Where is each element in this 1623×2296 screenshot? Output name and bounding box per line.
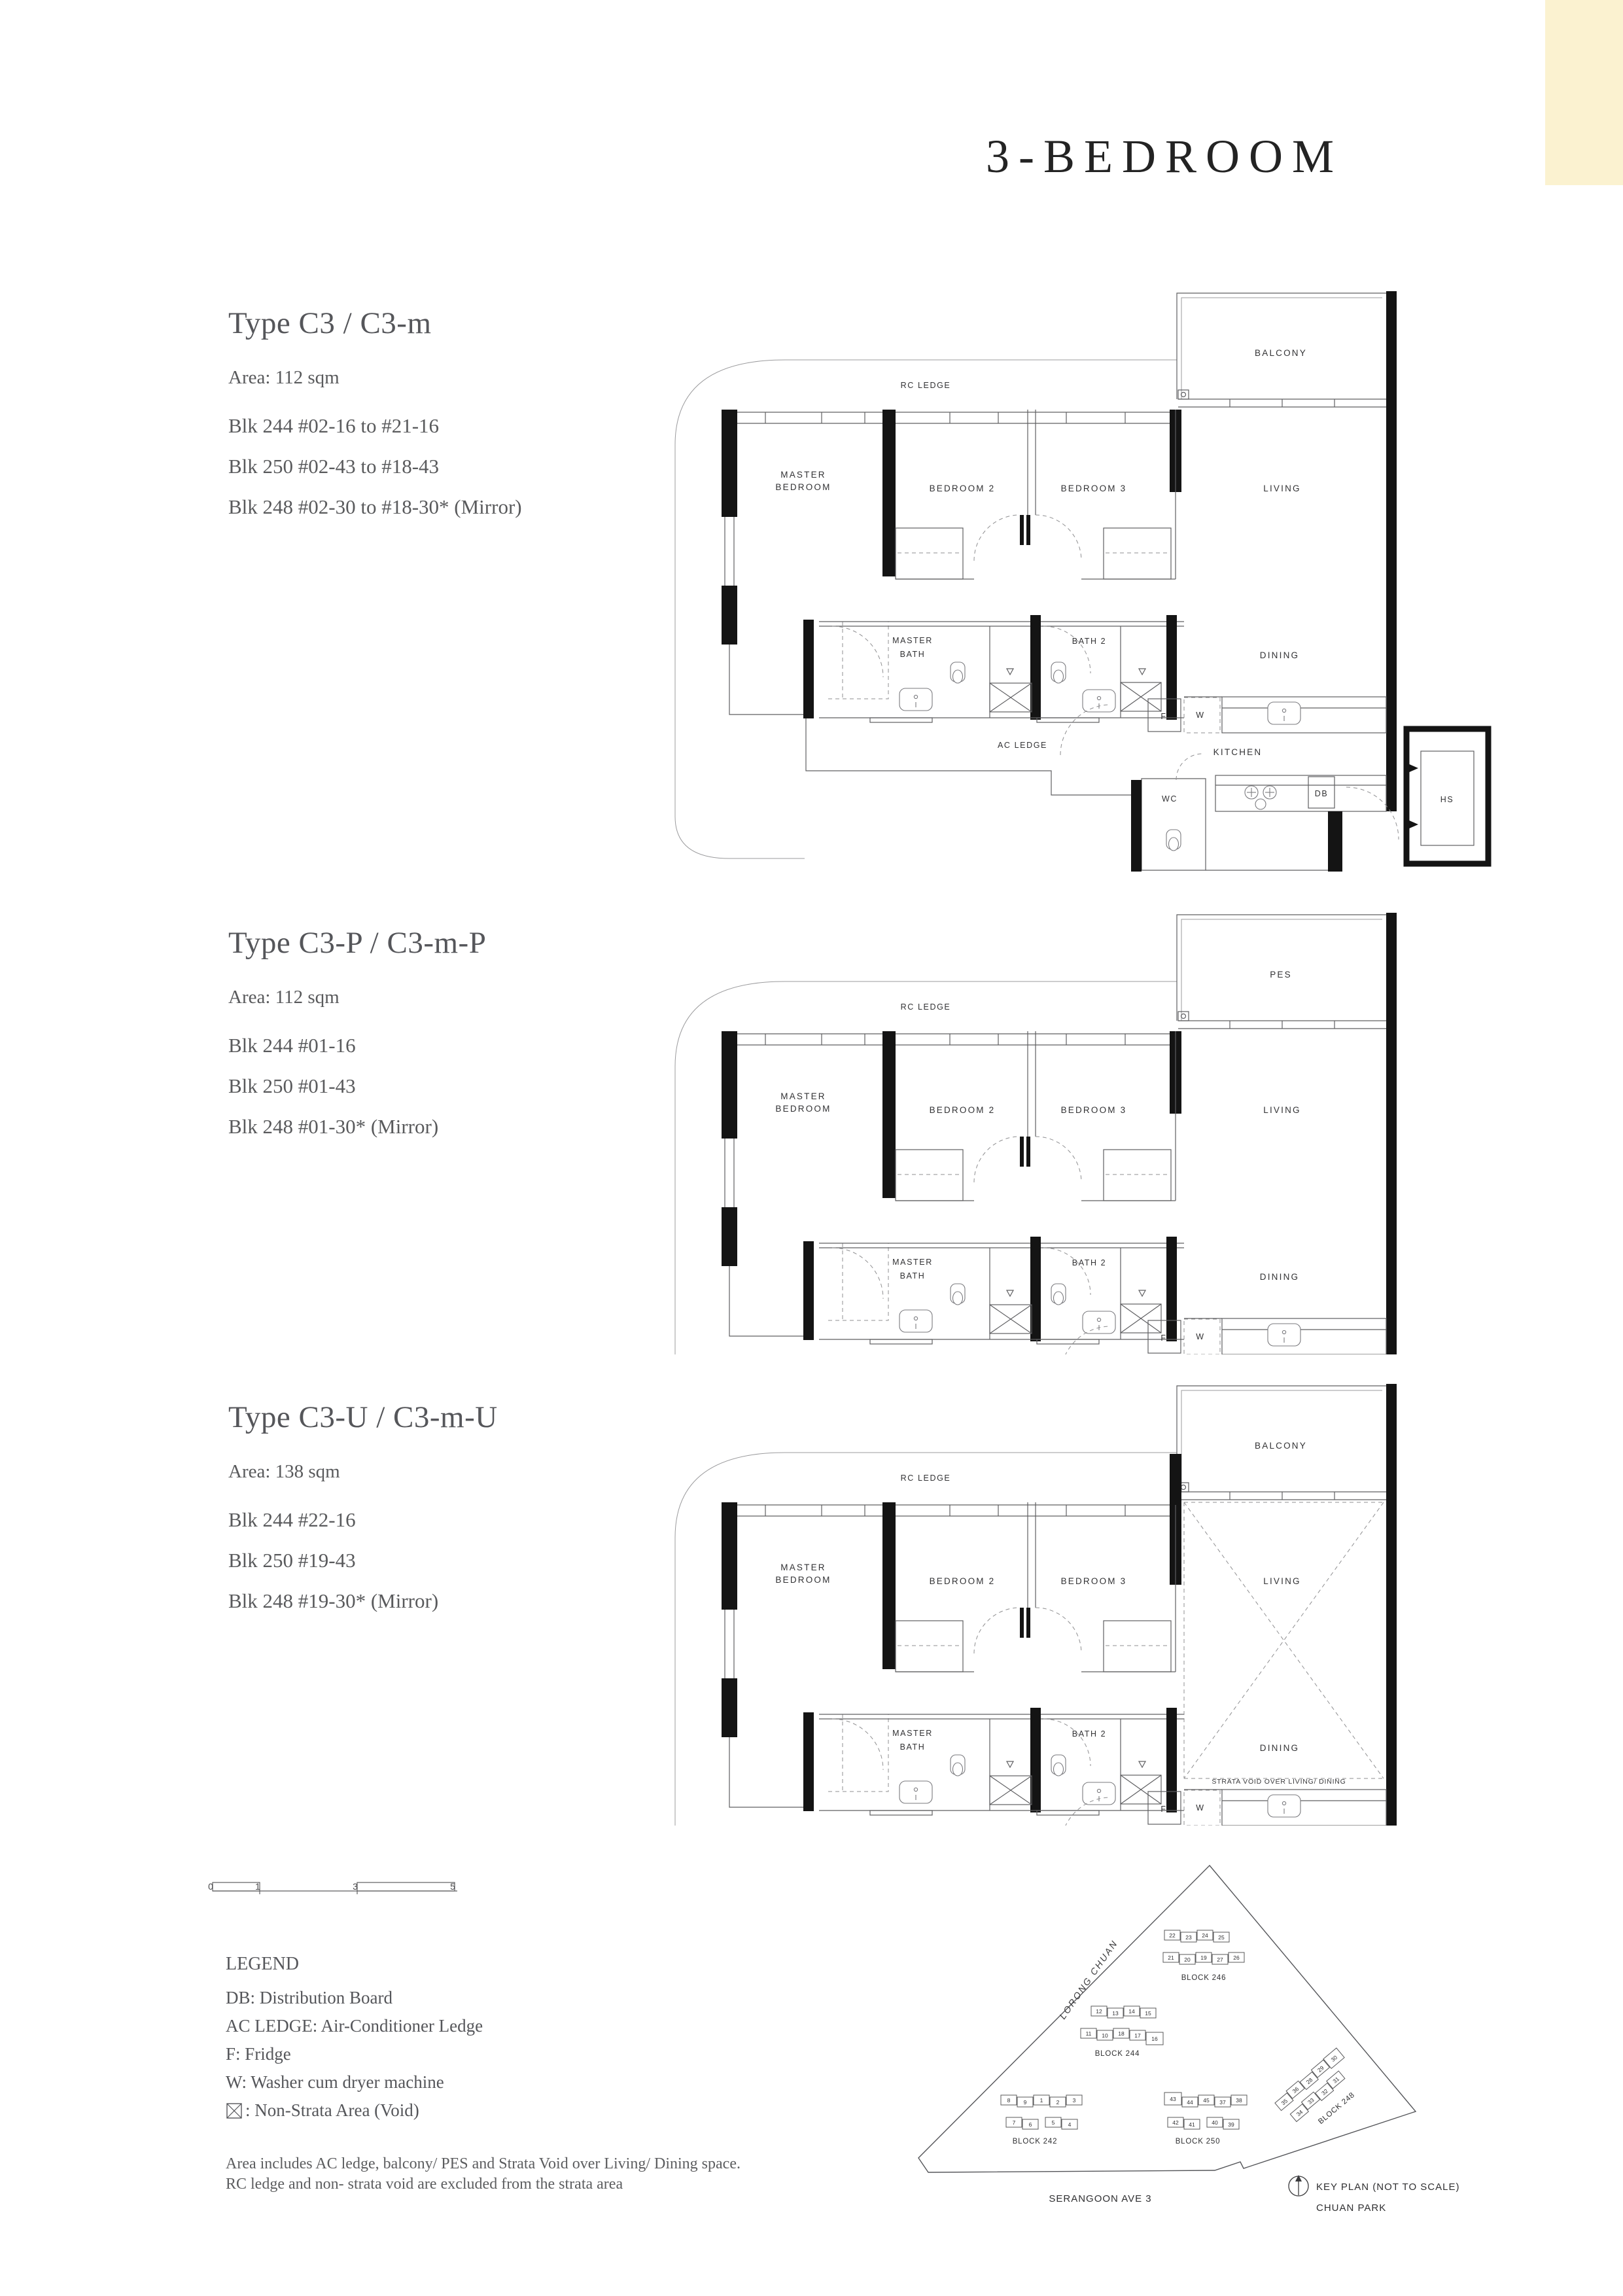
unit-number: 37 <box>1219 2099 1226 2106</box>
unit-number: 23 <box>1185 1934 1192 1941</box>
ac-ledge-label: AC LEDGE <box>998 741 1047 750</box>
keyplan-block-244: 12 13 14 15 11 10 18 17 16 BLOCK 244 <box>1081 2006 1163 2058</box>
footnote: Area includes AC ledge, balcony/ PES and… <box>226 2154 741 2195</box>
brochure-page: 3-BEDROOM Type C3 / C3-m Area: 112 sqm B… <box>0 0 1623 2296</box>
unit-number: 2 <box>1056 2099 1060 2106</box>
unit-number: 19 <box>1200 1954 1207 1961</box>
unit-number: 18 <box>1118 2030 1125 2037</box>
unit-number: 11 <box>1086 2030 1092 2037</box>
type-name: Type C3-U / C3-m-U <box>228 1400 498 1434</box>
unit-number: 4 <box>1068 2121 1072 2128</box>
unit-number: 44 <box>1187 2099 1193 2106</box>
keyplan-block-246: 22 23 24 25 21 20 19 27 26 BLOCK 246 <box>1163 1930 1244 1982</box>
type-area: Area: 112 sqm <box>228 987 486 1008</box>
unit-number: 13 <box>1112 2010 1119 2017</box>
site-boundary <box>918 1865 1416 2172</box>
unit-number: 9 <box>1024 2099 1027 2106</box>
unit-number: 24 <box>1202 1932 1208 1939</box>
plan3-overlay: BALCONY STRATA VOID OVER LIVING/ DINING <box>1170 1441 1384 1786</box>
type-unit-range: Blk 250 #19-43 <box>228 1540 498 1581</box>
north-arrow-icon <box>1289 2175 1308 2196</box>
unit-number: 39 <box>1228 2121 1234 2128</box>
scale-tick: 5 <box>450 1881 455 1892</box>
type-unit-range: Blk 248 #19-30* (Mirror) <box>228 1581 498 1621</box>
key-plan: LORONG CHUAN SERANGOON AVE 3 22 23 24 25… <box>903 1845 1622 2264</box>
scale-tick: 3 <box>353 1881 358 1892</box>
floor-plan-type-c3p: PES <box>667 903 1524 1354</box>
floor-plan-type-c3u: BALCONY STRATA VOID OVER LIVING/ DINING <box>667 1374 1524 1826</box>
strata-void-cross <box>1184 1502 1384 1778</box>
type-block-c3u: Type C3-U / C3-m-U Area: 138 sqm Blk 244… <box>228 1400 498 1621</box>
type-name: Type C3-P / C3-m-P <box>228 926 486 960</box>
type-unit-range: Blk 244 #22-16 <box>228 1500 498 1540</box>
void-icon <box>226 2102 243 2119</box>
plan2-overlay: PES <box>1270 970 1292 980</box>
db-label: DB <box>1315 789 1329 798</box>
unit-number: 14 <box>1128 2008 1135 2015</box>
cream-corner-band <box>1545 0 1623 185</box>
unit-number: 6 <box>1029 2121 1032 2128</box>
balcony-label: BALCONY <box>1255 1441 1307 1451</box>
type-area: Area: 112 sqm <box>228 367 522 389</box>
keyplan-caption: CHUAN PARK <box>1316 2202 1386 2214</box>
unit-number: 10 <box>1102 2032 1108 2039</box>
type-area: Area: 138 sqm <box>228 1461 498 1483</box>
unit-number: 5 <box>1052 2119 1055 2126</box>
footnote-line: RC ledge and non- strata void are exclud… <box>226 2174 741 2195</box>
legend-item: : Non-Strata Area (Void) <box>245 2096 419 2125</box>
legend-item: DB: Distribution Board <box>226 1984 483 2012</box>
hob-icon <box>1245 786 1276 809</box>
type-unit-range: Blk 248 #02-30 to #18-30* (Mirror) <box>228 487 522 527</box>
household-shelter: HS <box>1406 729 1488 864</box>
type-name: Type C3 / C3-m <box>228 306 522 340</box>
type-unit-range: Blk 248 #01-30* (Mirror) <box>228 1106 486 1147</box>
unit-number: 20 <box>1184 1956 1191 1963</box>
wc-label: WC <box>1162 794 1178 804</box>
balcony-label: BALCONY <box>1255 348 1307 358</box>
road-serangoon-ave3: SERANGOON AVE 3 <box>1049 2193 1151 2204</box>
keyplan-block-242: 8 9 1 2 3 7 6 5 4 BLOCK 242 <box>1001 2095 1082 2146</box>
strata-void-label: STRATA VOID OVER LIVING/ DINING <box>1212 1778 1346 1786</box>
unit-number-highlight: 43 <box>1170 2096 1176 2102</box>
scale-bar: 0 1 3 5 <box>196 1871 484 1898</box>
unit-number: 40 <box>1212 2119 1218 2126</box>
unit-number: 38 <box>1236 2097 1242 2104</box>
type-unit-range: Blk 250 #01-43 <box>228 1066 486 1106</box>
type-unit-range: Blk 244 #01-16 <box>228 1025 486 1066</box>
unit-number: 21 <box>1168 1954 1174 1961</box>
legend-title: LEGEND <box>226 1954 483 1975</box>
floor-plan-type-c3: BALCONY AC LEDGE KITCHEN DB WC <box>667 281 1524 910</box>
pes-label: PES <box>1270 970 1292 980</box>
unit-number: 17 <box>1134 2032 1141 2039</box>
unit-number: 41 <box>1189 2121 1195 2128</box>
type-block-c3p: Type C3-P / C3-m-P Area: 112 sqm Blk 244… <box>228 926 486 1147</box>
unit-number: 7 <box>1013 2119 1016 2126</box>
unit-number: 1 <box>1040 2097 1043 2104</box>
block-label: BLOCK 242 <box>1013 2138 1058 2146</box>
legend-item: F: Fridge <box>226 2040 483 2068</box>
unit-number: 25 <box>1218 1934 1225 1941</box>
scale-tick: 0 <box>208 1881 213 1892</box>
unit-number: 45 <box>1203 2097 1210 2104</box>
unit-number-highlight: 16 <box>1151 2036 1158 2042</box>
type-unit-range: Blk 244 #02-16 to #21-16 <box>228 406 522 446</box>
block-label: BLOCK 246 <box>1181 1974 1227 1982</box>
legend: LEGEND DB: Distribution Board AC LEDGE: … <box>226 1954 483 2125</box>
keyplan-block-250: 43 44 45 37 38 42 41 40 39 BLOCK 250 <box>1164 2093 1247 2146</box>
unit-number: 8 <box>1007 2097 1011 2104</box>
legend-item: W: Washer cum dryer machine <box>226 2068 483 2096</box>
unit-number: 3 <box>1073 2097 1076 2104</box>
unit-number: 12 <box>1096 2008 1102 2015</box>
legend-item: AC LEDGE: Air-Conditioner Ledge <box>226 2012 483 2040</box>
keyplan-caption: KEY PLAN (NOT TO SCALE) <box>1316 2181 1459 2193</box>
type-block-c3: Type C3 / C3-m Area: 112 sqm Blk 244 #02… <box>228 306 522 527</box>
kitchen-label: KITCHEN <box>1213 747 1263 757</box>
block-label: BLOCK 250 <box>1176 2138 1221 2146</box>
scale-tick: 1 <box>255 1881 260 1892</box>
unit-number: 22 <box>1169 1932 1176 1939</box>
unit-number: 26 <box>1233 1954 1240 1961</box>
hs-label: HS <box>1440 795 1454 804</box>
unit-number: 42 <box>1172 2119 1179 2126</box>
unit-number: 15 <box>1145 2010 1151 2017</box>
plan1-overlay: BALCONY AC LEDGE KITCHEN DB WC <box>806 348 1488 872</box>
type-unit-range: Blk 250 #02-43 to #18-43 <box>228 446 522 487</box>
block-label: BLOCK 244 <box>1095 2050 1140 2058</box>
footnote-line: Area includes AC ledge, balcony/ PES and… <box>226 2154 741 2174</box>
unit-number: 27 <box>1217 1956 1223 1963</box>
keyplan-block-248: 35 36 28 29 30 34 33 32 31 BLOCK 248 <box>1273 2048 1369 2140</box>
page-title: 3-BEDROOM <box>903 130 1426 184</box>
